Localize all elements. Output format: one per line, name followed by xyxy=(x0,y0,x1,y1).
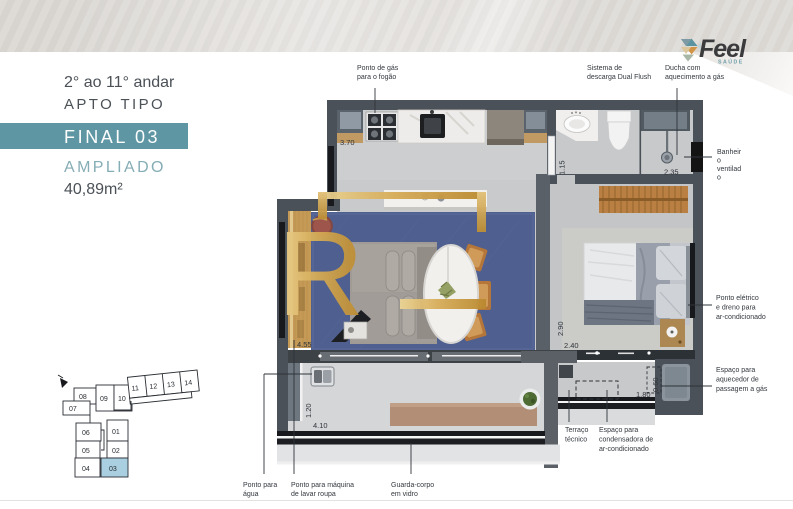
svg-text:água: água xyxy=(243,491,259,498)
svg-text:Terraço: Terraço xyxy=(565,427,588,434)
svg-text:0.60: 0.60 xyxy=(651,377,660,392)
svg-text:05: 05 xyxy=(82,448,90,455)
svg-text:técnico: técnico xyxy=(565,437,587,444)
svg-text:aquecimento a gás: aquecimento a gás xyxy=(665,74,725,81)
svg-text:para o fogão: para o fogão xyxy=(357,74,396,81)
svg-text:aquecedor de: aquecedor de xyxy=(716,377,759,384)
svg-text:1.15: 1.15 xyxy=(558,160,567,175)
svg-text:1.20: 1.20 xyxy=(304,403,313,418)
svg-text:4.55: 4.55 xyxy=(297,340,312,349)
svg-text:13: 13 xyxy=(167,381,176,389)
svg-text:de lavar roupa: de lavar roupa xyxy=(291,491,336,498)
svg-text:Ponto elétrico: Ponto elétrico xyxy=(716,295,759,302)
svg-text:passagem a gás: passagem a gás xyxy=(716,386,768,393)
svg-text:Ponto para: Ponto para xyxy=(243,482,277,489)
svg-text:03: 03 xyxy=(109,466,117,473)
svg-text:Ponto de gás: Ponto de gás xyxy=(357,65,399,72)
svg-text:e dreno para: e dreno para xyxy=(716,305,756,312)
svg-text:06: 06 xyxy=(82,430,90,437)
svg-text:1.80: 1.80 xyxy=(636,390,651,399)
svg-text:Ducha com: Ducha com xyxy=(665,65,701,72)
svg-text:condensadora de: condensadora de xyxy=(599,437,653,444)
svg-text:11: 11 xyxy=(131,385,139,393)
svg-text:3.70: 3.70 xyxy=(340,138,355,147)
svg-text:09: 09 xyxy=(100,396,108,403)
svg-text:10: 10 xyxy=(118,396,126,403)
svg-text:08: 08 xyxy=(79,394,87,401)
svg-text:01: 01 xyxy=(112,429,120,436)
svg-text:o: o xyxy=(717,175,721,182)
svg-text:04: 04 xyxy=(82,466,90,473)
svg-text:o: o xyxy=(717,158,721,165)
svg-text:12: 12 xyxy=(149,383,158,391)
svg-text:descarga Dual Flush: descarga Dual Flush xyxy=(587,74,651,81)
svg-text:Espaço para: Espaço para xyxy=(599,427,638,434)
svg-text:ar-condicionado: ar-condicionado xyxy=(716,314,766,321)
svg-text:ar-condicionado: ar-condicionado xyxy=(599,446,649,453)
svg-text:R: R xyxy=(277,205,364,341)
svg-text:2.90: 2.90 xyxy=(556,321,565,336)
svg-text:2.35: 2.35 xyxy=(664,168,679,177)
svg-text:14: 14 xyxy=(184,380,193,388)
svg-text:Espaço para: Espaço para xyxy=(716,367,755,374)
svg-text:Ponto para máquina: Ponto para máquina xyxy=(291,482,354,489)
svg-text:07: 07 xyxy=(69,406,77,413)
svg-text:Banheir: Banheir xyxy=(717,149,742,156)
svg-text:ventilad: ventilad xyxy=(717,166,741,173)
svg-text:02: 02 xyxy=(112,448,120,455)
svg-text:2.40: 2.40 xyxy=(564,341,579,350)
svg-text:Guarda-corpo: Guarda-corpo xyxy=(391,482,434,489)
svg-text:4.10: 4.10 xyxy=(313,421,328,430)
svg-text:em vidro: em vidro xyxy=(391,491,418,498)
svg-text:Sistema de: Sistema de xyxy=(587,65,622,72)
